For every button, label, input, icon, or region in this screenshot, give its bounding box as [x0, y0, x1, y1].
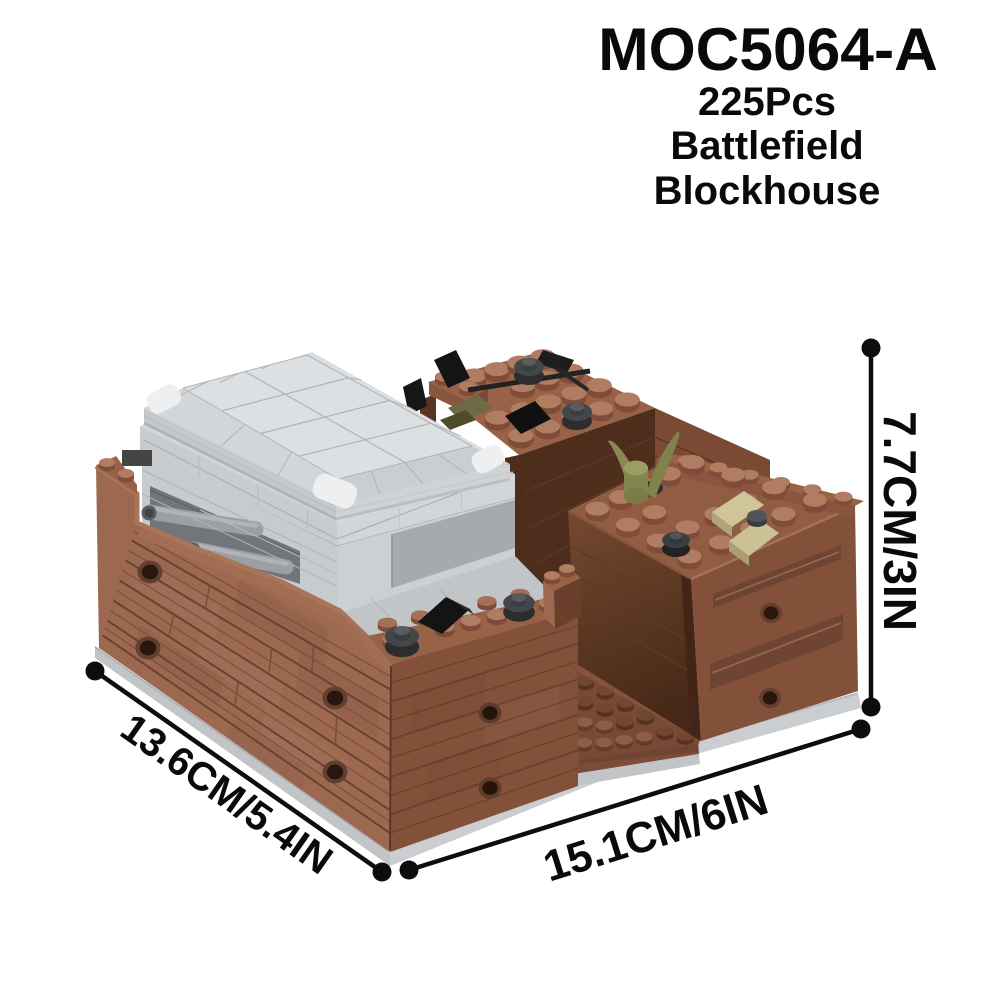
- svg-text:Battlefield: Battlefield: [670, 124, 863, 168]
- svg-text:7.7CM/3IN: 7.7CM/3IN: [874, 411, 926, 631]
- svg-text:Blockhouse: Blockhouse: [654, 169, 881, 213]
- svg-text:MOC5064-A: MOC5064-A: [598, 15, 938, 83]
- svg-text:225Pcs: 225Pcs: [698, 80, 836, 124]
